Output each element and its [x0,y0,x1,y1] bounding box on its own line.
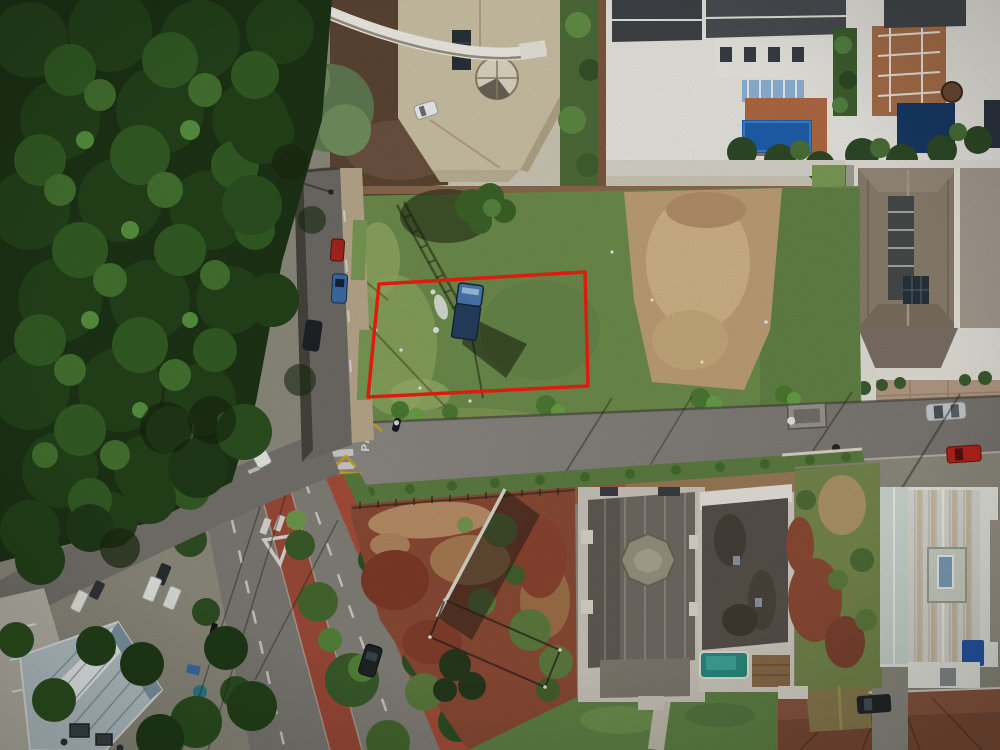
film-grain-overlay [0,0,1000,750]
aerial-photo: PARE [0,0,1000,750]
aerial-photo-canvas: PARE [0,0,1000,750]
